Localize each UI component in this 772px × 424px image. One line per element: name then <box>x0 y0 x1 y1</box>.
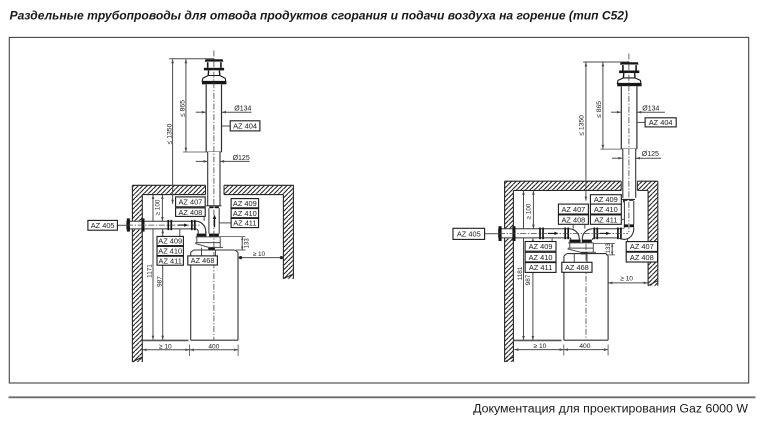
svg-text:AZ 407: AZ 407 <box>178 198 202 207</box>
svg-text:≤ 1350: ≤ 1350 <box>579 115 586 136</box>
svg-text:Ø125: Ø125 <box>642 151 659 158</box>
svg-text:1181: 1181 <box>517 266 524 280</box>
svg-text:≥ 10: ≥ 10 <box>253 251 266 258</box>
svg-text:≤ 865: ≤ 865 <box>180 100 187 117</box>
svg-text:≤ 1350: ≤ 1350 <box>166 123 173 144</box>
svg-text:AZ 411: AZ 411 <box>594 215 617 224</box>
svg-text:987: 987 <box>525 274 532 285</box>
svg-text:AZ 404: AZ 404 <box>649 118 673 127</box>
svg-text:Документация для проектировани: Документация для проектирования Gaz 6000… <box>473 402 748 416</box>
svg-text:AZ 409: AZ 409 <box>233 199 257 208</box>
svg-text:≥ 10: ≥ 10 <box>534 343 547 350</box>
svg-text:Раздельные трубопроводы для от: Раздельные трубопроводы для отвода проду… <box>10 9 629 23</box>
svg-text:AZ 407: AZ 407 <box>561 205 585 214</box>
svg-text:AZ 409: AZ 409 <box>594 195 618 204</box>
svg-text:133: 133 <box>606 243 612 254</box>
svg-text:Ø125: Ø125 <box>233 155 250 162</box>
svg-text:AZ 408: AZ 408 <box>630 253 654 262</box>
svg-text:AZ 410: AZ 410 <box>158 247 182 256</box>
svg-text:AZ 408: AZ 408 <box>561 215 585 224</box>
svg-text:≥ 10: ≥ 10 <box>620 276 633 283</box>
svg-text:AZ 410: AZ 410 <box>594 205 618 214</box>
svg-text:1171: 1171 <box>147 264 154 278</box>
svg-text:≤ 865: ≤ 865 <box>596 101 603 118</box>
svg-text:AZ 407: AZ 407 <box>630 242 654 251</box>
svg-text:AZ 410: AZ 410 <box>529 253 553 262</box>
svg-text:AZ 468: AZ 468 <box>565 263 589 272</box>
svg-text:133: 133 <box>245 238 251 249</box>
svg-text:AZ 468: AZ 468 <box>191 256 215 265</box>
svg-text:≥ 100: ≥ 100 <box>155 199 162 215</box>
svg-text:Ø134: Ø134 <box>234 106 251 113</box>
svg-text:AZ 411: AZ 411 <box>233 219 256 228</box>
svg-text:AZ 404: AZ 404 <box>233 122 257 131</box>
svg-text:AZ 409: AZ 409 <box>158 237 182 246</box>
svg-text:AZ 408: AZ 408 <box>178 208 202 217</box>
svg-text:AZ 410: AZ 410 <box>233 209 257 218</box>
svg-text:AZ 405: AZ 405 <box>457 230 481 239</box>
svg-text:AZ 411: AZ 411 <box>159 256 182 265</box>
svg-text:≥ 10: ≥ 10 <box>159 343 172 350</box>
svg-text:987: 987 <box>157 276 164 287</box>
svg-text:AZ 405: AZ 405 <box>91 221 115 230</box>
svg-text:Ø134: Ø134 <box>642 105 659 112</box>
svg-text:400: 400 <box>579 343 590 350</box>
svg-text:AZ 409: AZ 409 <box>529 242 553 251</box>
svg-text:AZ 411: AZ 411 <box>529 263 552 272</box>
svg-text:≥ 100: ≥ 100 <box>526 203 533 219</box>
svg-text:400: 400 <box>208 343 219 350</box>
